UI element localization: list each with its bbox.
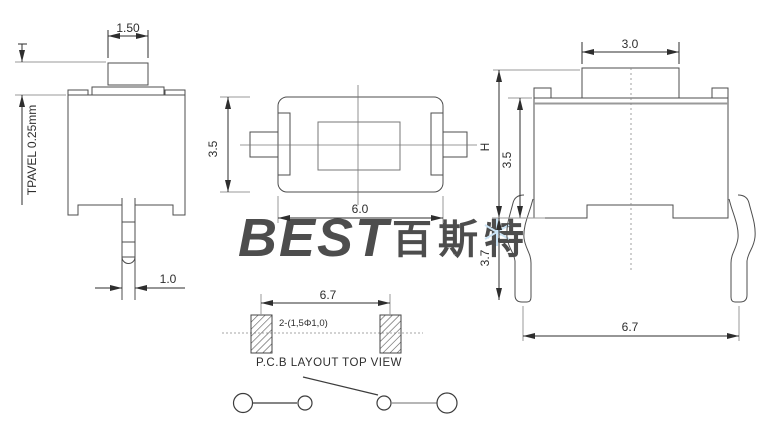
top-view-dimensions xyxy=(220,97,443,223)
top-view xyxy=(240,85,477,205)
front-top-left-tab xyxy=(534,88,551,98)
schematic-lever xyxy=(303,377,378,395)
side-view-dimensions xyxy=(15,30,185,288)
front-leg-span-dim: 6.7 xyxy=(622,320,639,334)
top-body-height-dim: 3.5 xyxy=(206,140,220,157)
switch-schematic xyxy=(234,377,458,413)
schematic-terminal-1 xyxy=(234,394,253,413)
front-knob-width-dim: 3.0 xyxy=(622,37,639,51)
front-height-label: H xyxy=(478,143,492,152)
side-view xyxy=(68,63,185,300)
side-top-left-tab xyxy=(68,90,88,95)
schematic-contact-left xyxy=(298,396,312,410)
pcb-right-pad xyxy=(380,315,401,353)
technical-drawing-page: BEST 百斯特 xyxy=(0,0,767,430)
front-knob-outline xyxy=(582,68,679,98)
side-cap-outline xyxy=(92,87,164,95)
side-pin-width-dim: 1.0 xyxy=(160,272,177,286)
top-body-width-dim: 6.0 xyxy=(352,202,369,216)
side-top-right-tab xyxy=(165,90,185,95)
top-left-tab xyxy=(278,113,290,175)
side-knob-outline xyxy=(108,63,148,85)
front-view-dimensions xyxy=(492,42,739,341)
pcb-caption: P.C.B LAYOUT TOP VIEW xyxy=(256,357,402,369)
watermark-cjk-text: 百斯特 xyxy=(392,218,530,262)
pcb-pad-pitch-dim: 6.7 xyxy=(320,288,337,302)
schematic-contact-right xyxy=(377,396,391,410)
top-body-outline xyxy=(278,97,443,192)
top-left-terminal xyxy=(250,132,278,157)
side-knob-width-dim: 1.50 xyxy=(116,21,140,35)
front-right-leg xyxy=(729,195,755,302)
front-view xyxy=(507,68,755,302)
schematic-terminal-2 xyxy=(437,393,457,413)
pcb-left-pad xyxy=(251,315,272,353)
front-top-right-tab xyxy=(712,88,728,98)
tact-switch-drawing: BEST 百斯特 xyxy=(0,0,767,430)
pcb-hole-spec-label: 2-(1,5Φ1,0) xyxy=(279,318,328,329)
side-body-outline xyxy=(68,95,185,215)
front-body-height-dim: 3.5 xyxy=(500,151,514,168)
side-pin xyxy=(122,198,135,300)
side-travel-label: TPAVEL 0.25mm xyxy=(25,105,39,195)
top-right-tab xyxy=(431,113,443,175)
top-inner-rect xyxy=(318,122,400,170)
front-leg-length-dim: 3.7 xyxy=(478,249,492,266)
top-right-terminal xyxy=(443,132,467,157)
watermark-logo-text: BEST xyxy=(238,208,392,268)
